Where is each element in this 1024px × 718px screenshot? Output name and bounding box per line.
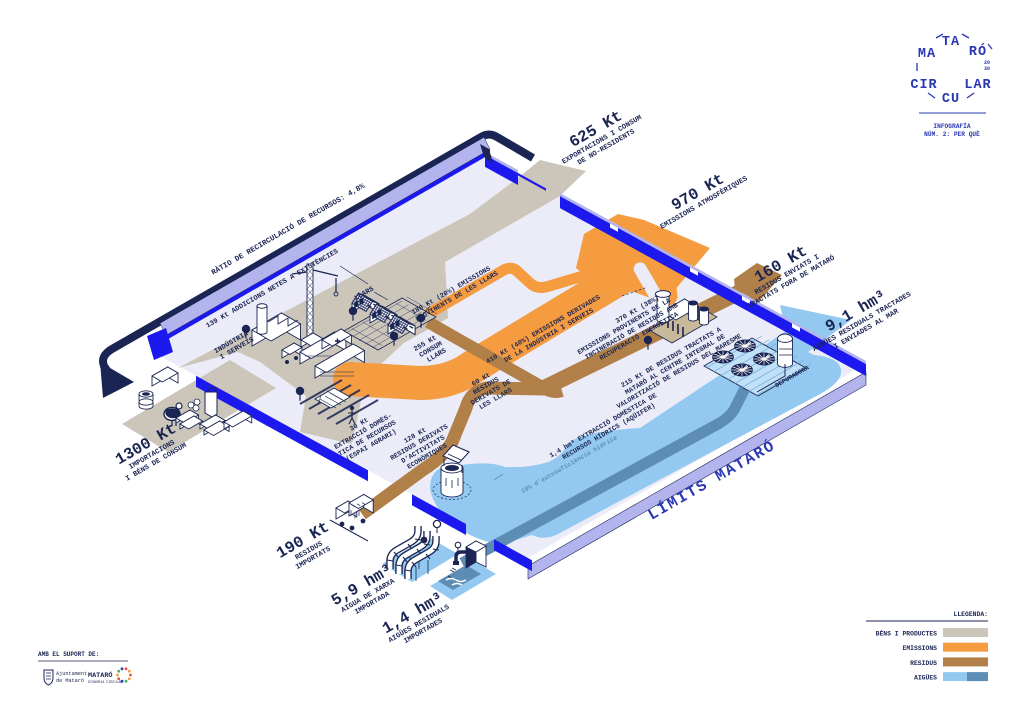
svg-text:AMB EL SUPORT DE:: AMB EL SUPORT DE: [38,651,99,658]
svg-text:MATARÓ: MATARÓ [88,670,112,680]
svg-text:EMISSIONS: EMISSIONS [902,645,937,652]
svg-text:de Mataró: de Mataró [56,678,84,684]
svg-text:ECONOMIA CIRCULAR: ECONOMIA CIRCULAR [88,681,123,685]
svg-text:RÓ: RÓ [969,44,987,60]
svg-text:30: 30 [984,66,990,72]
svg-text:TA: TA [942,35,960,50]
svg-text:BÉNS I PRODUCTES: BÉNS I PRODUCTES [876,630,938,638]
svg-text:CU: CU [942,92,960,107]
svg-text:NÚM. 2: PER QUÈ: NÚM. 2: PER QUÈ [924,131,980,138]
svg-text:AIGÜES: AIGÜES [914,674,937,682]
svg-text:Ajuntament: Ajuntament [56,671,87,677]
svg-text:MA: MA [918,47,936,62]
svg-text:RESIDUS: RESIDUS [910,660,937,667]
svg-text:LLEGENDA:: LLEGENDA: [953,611,988,618]
svg-text:CIR: CIR [910,78,937,93]
svg-text:LAR: LAR [964,78,991,93]
svg-text:INFOGRAFÍA: INFOGRAFÍA [933,123,970,130]
